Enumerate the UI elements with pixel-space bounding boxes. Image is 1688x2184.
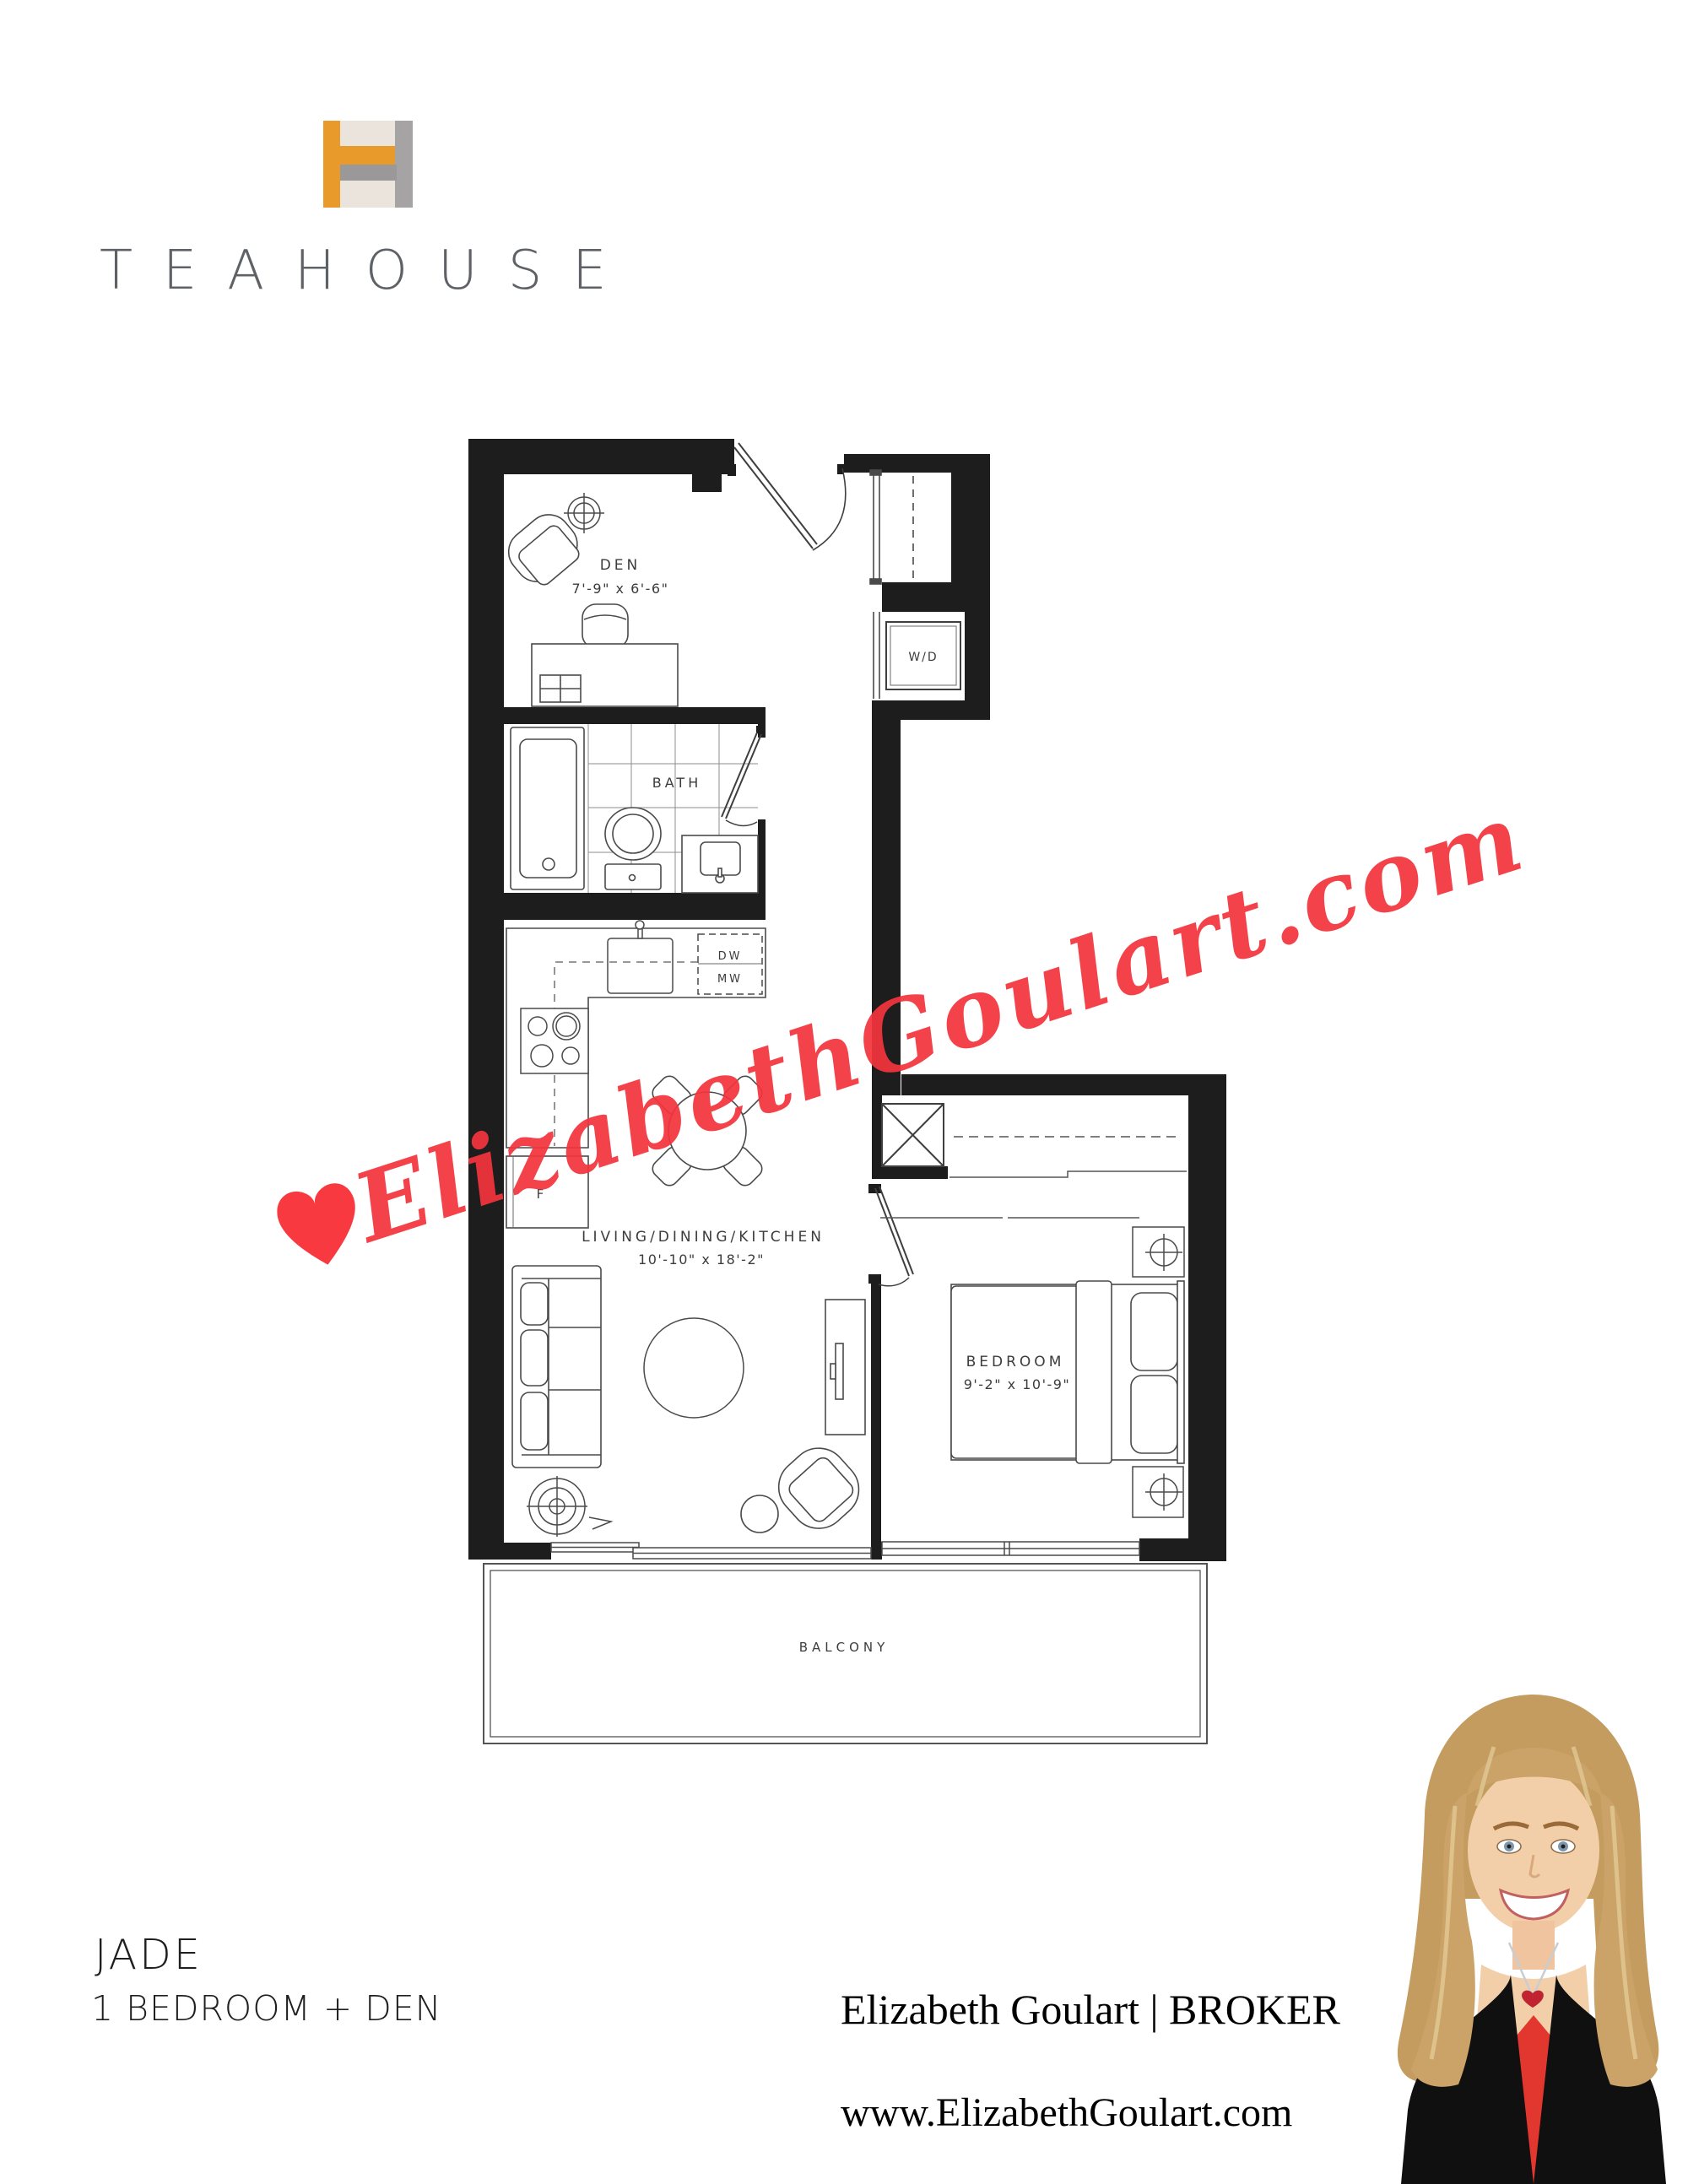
area-rug bbox=[644, 1318, 744, 1418]
entry-door bbox=[734, 443, 846, 550]
flyer-page: TEAHOUSE bbox=[0, 0, 1688, 2184]
washer-dryer: W/D bbox=[886, 622, 960, 689]
dishwasher-label: DW bbox=[718, 950, 743, 963]
dishwasher-microwave: DW MW bbox=[698, 934, 762, 994]
floor-lamp bbox=[527, 1476, 611, 1537]
bed bbox=[951, 1281, 1184, 1463]
shaft bbox=[882, 1104, 944, 1166]
logo-block-cream-bottom bbox=[340, 181, 395, 208]
bedroom-label: BEDROOM bbox=[966, 1354, 1065, 1370]
balcony-label: BALCONY bbox=[799, 1640, 890, 1655]
bedroom-door bbox=[875, 1187, 913, 1286]
tv-console bbox=[825, 1300, 865, 1435]
sofa bbox=[512, 1266, 601, 1468]
logo-wordmark: TEAHOUSE bbox=[100, 240, 636, 302]
den-desk bbox=[532, 604, 678, 706]
logo-bar-gray bbox=[395, 121, 413, 208]
windows bbox=[551, 1542, 1139, 1559]
laundry-label: W/D bbox=[908, 651, 938, 664]
living-label: LIVING/DINING/KITCHEN bbox=[582, 1229, 825, 1246]
bath-vanity bbox=[682, 835, 758, 893]
logo-bar-orange bbox=[323, 121, 340, 208]
unit-type: 1 BEDROOM + DEN bbox=[91, 1988, 441, 2029]
teahouse-logo-icon bbox=[323, 121, 413, 208]
cooktop bbox=[521, 1008, 588, 1073]
logo-block-cream-top bbox=[340, 121, 395, 146]
bedroom-dims: 9'-2" x 10'-9" bbox=[964, 1376, 1071, 1392]
microwave-label: MW bbox=[717, 973, 743, 986]
logo-bar-orange-horizontal bbox=[340, 146, 395, 165]
den-label: DEN bbox=[600, 557, 641, 574]
bath-label: BATH bbox=[652, 775, 701, 791]
broker-portrait bbox=[1367, 1688, 1688, 2184]
bath-tub bbox=[511, 727, 584, 889]
den-dims: 7'-9" x 6'-6" bbox=[572, 581, 669, 597]
unit-name: JADE bbox=[95, 1931, 203, 1979]
lounge-chair bbox=[741, 1436, 870, 1540]
broker-name-title: Elizabeth Goulart | BROKER bbox=[841, 1985, 1381, 2034]
bath-door bbox=[722, 733, 761, 826]
broker-website: www.ElizabethGoulart.com bbox=[841, 2089, 1381, 2136]
toilet bbox=[605, 808, 661, 889]
living-dims: 10'-10" x 18'-2" bbox=[638, 1251, 765, 1268]
logo-bar-gray-horizontal bbox=[340, 165, 397, 181]
